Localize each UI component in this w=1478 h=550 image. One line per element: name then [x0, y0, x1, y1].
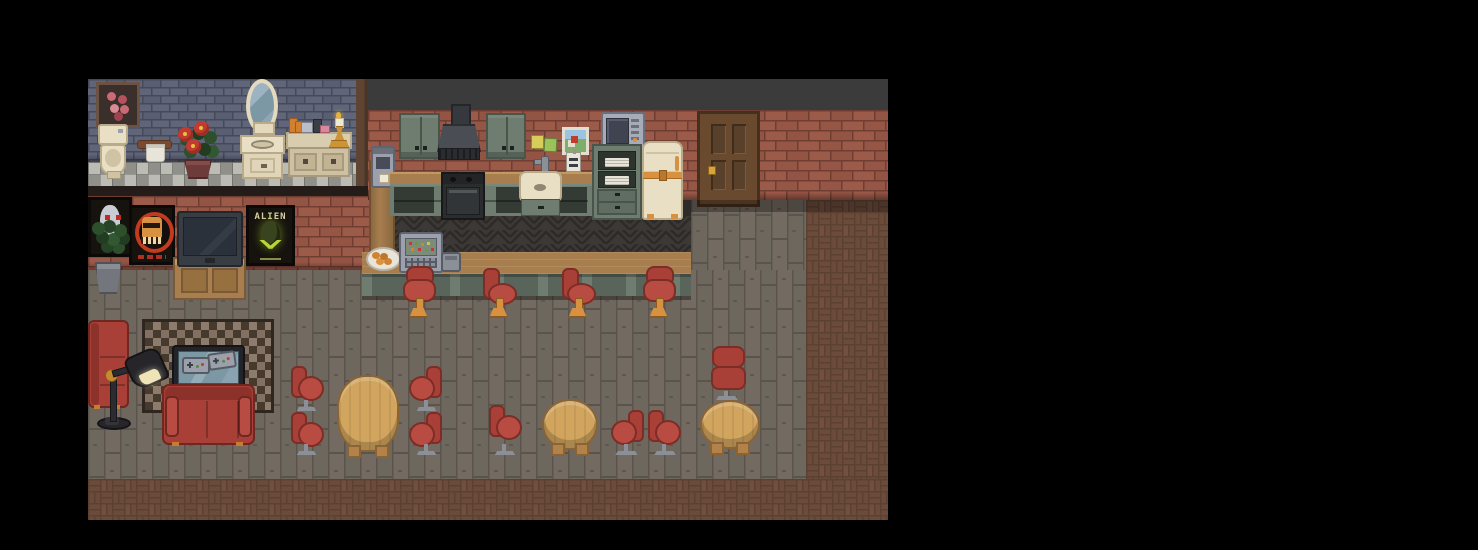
bar-stool[interactable] — [643, 266, 674, 317]
dining-chair[interactable] — [489, 405, 521, 455]
stool-base — [568, 308, 587, 318]
robot-grill — [141, 237, 163, 244]
candle-stem — [334, 126, 345, 142]
tv-stand-doors — [181, 268, 238, 293]
wall-edge-strip — [88, 186, 369, 196]
door-panels — [711, 124, 746, 190]
dining-chair[interactable] — [411, 366, 442, 411]
bar-stool[interactable] — [403, 266, 434, 317]
poster-caption-marks — [138, 255, 167, 259]
chair-back — [712, 346, 745, 368]
chair-base — [417, 451, 437, 455]
chair-seat — [711, 366, 746, 390]
hutch-shelf — [598, 171, 636, 188]
chair-stem — [424, 400, 428, 407]
hutch-shelf — [598, 151, 636, 170]
kitchen-sink[interactable] — [519, 156, 562, 216]
sink-cabinet — [521, 199, 560, 216]
vanity-cabinet — [242, 152, 283, 179]
flower-plant[interactable] — [176, 119, 220, 179]
towel-cloth — [146, 144, 165, 162]
sticky-note-green[interactable] — [544, 138, 558, 153]
robot-poster[interactable] — [129, 205, 175, 265]
towel-holder[interactable] — [137, 138, 172, 162]
stool-base — [649, 308, 668, 318]
toilet-base — [107, 171, 122, 179]
poster-tagline-mark — [260, 258, 282, 260]
game-controller[interactable] — [182, 357, 210, 374]
card-reader[interactable] — [441, 252, 461, 272]
brick-floor-right — [806, 200, 888, 479]
table-foot — [375, 445, 389, 458]
game-viewport[interactable]: ALIEN — [88, 79, 888, 520]
lamp-pole — [110, 376, 117, 422]
rose-picture[interactable] — [96, 82, 140, 128]
wall-divider — [356, 79, 368, 190]
candle-base — [329, 140, 349, 148]
tv-screen — [183, 217, 237, 256]
chair-seat — [409, 422, 435, 447]
robot-face — [142, 217, 162, 238]
dining-table-round[interactable] — [700, 400, 760, 455]
jar — [301, 122, 313, 133]
chair-seat — [611, 420, 637, 445]
counter-doors — [288, 147, 350, 177]
vanity-mirror[interactable] — [242, 79, 282, 135]
dining-table-round[interactable] — [542, 399, 598, 456]
chair-seat — [298, 376, 324, 401]
plant-pot — [95, 262, 122, 294]
mirror-base — [253, 122, 275, 135]
stove[interactable] — [441, 172, 485, 220]
couch-armrest — [238, 396, 252, 437]
rose-art — [107, 92, 116, 101]
chair-base — [297, 451, 317, 455]
dish-hutch[interactable] — [592, 144, 642, 220]
chair-base — [297, 407, 317, 411]
chair-seat — [409, 376, 435, 401]
chair-base — [495, 451, 515, 455]
table-foot — [736, 442, 750, 455]
stool-base — [489, 308, 508, 318]
candlestick[interactable] — [328, 112, 348, 148]
plank-floor-by-door — [691, 200, 806, 270]
dining-chair[interactable] — [710, 346, 744, 400]
alien-poster[interactable]: ALIEN — [246, 205, 295, 266]
coffee-cup — [379, 174, 389, 183]
chair-seat — [655, 420, 681, 445]
dining-table-oval[interactable] — [337, 375, 399, 458]
microwave-buttons — [631, 119, 639, 143]
plate-stack — [605, 176, 628, 185]
flower — [186, 139, 201, 154]
fridge[interactable] — [642, 141, 683, 220]
couch-bottom[interactable] — [162, 384, 255, 445]
lamp-shade — [122, 345, 170, 392]
entry-door[interactable] — [697, 111, 760, 207]
sink-vanity[interactable] — [240, 135, 285, 179]
toilet-tank — [98, 124, 128, 145]
floor-lamp[interactable] — [95, 350, 165, 430]
dining-chair[interactable] — [291, 366, 322, 411]
microwave-window — [606, 118, 629, 144]
plant-leaves — [92, 222, 105, 235]
fridge-feet — [647, 214, 678, 219]
toilet[interactable] — [97, 124, 129, 179]
couch-cushions — [177, 401, 240, 438]
brick-floor-bottom — [88, 479, 888, 520]
stool-base — [409, 308, 428, 318]
register-screen — [405, 238, 437, 256]
dining-chair[interactable] — [609, 410, 644, 455]
hutch-drawers — [597, 189, 637, 215]
chair-stem — [662, 444, 666, 451]
table-foot — [710, 442, 724, 455]
range-hood — [437, 104, 481, 162]
bar-stool[interactable] — [562, 266, 593, 317]
chair-base — [654, 451, 676, 455]
chair-seat — [496, 415, 522, 440]
door-knob — [708, 166, 716, 175]
tv-neck — [205, 258, 215, 263]
cooktop — [443, 174, 483, 184]
hood-vent — [438, 148, 480, 160]
plate-stack — [605, 158, 628, 167]
potted-plant[interactable] — [88, 220, 130, 294]
pastries — [372, 252, 380, 259]
dining-chair[interactable] — [291, 412, 322, 455]
chair-base — [615, 451, 637, 455]
chair-seat — [298, 422, 324, 447]
chair-stem — [502, 444, 506, 451]
hanging-sign[interactable] — [566, 152, 581, 172]
machine-window — [376, 157, 390, 169]
table-foot — [575, 443, 589, 456]
chair-stem — [304, 400, 308, 407]
table-foot — [551, 443, 565, 456]
upper-cabinet-left[interactable] — [399, 113, 440, 159]
chair-stem — [424, 444, 428, 451]
pastry-plate[interactable] — [366, 247, 401, 271]
toiletries — [289, 116, 329, 133]
chair-stem — [624, 444, 628, 451]
fridge-belt — [643, 171, 682, 179]
plant-pot — [184, 159, 212, 179]
flower — [194, 121, 209, 136]
bar-stool[interactable] — [483, 266, 514, 317]
chair-stem — [304, 444, 308, 451]
dining-chair[interactable] — [648, 410, 682, 455]
table-foot — [347, 445, 361, 458]
chair-base — [417, 407, 437, 411]
table-top — [337, 375, 399, 452]
oven-door — [446, 187, 480, 215]
screen-background: { "scene": { "title": "Pixel-art cafe ap… — [0, 0, 1478, 550]
dining-chair[interactable] — [411, 412, 442, 455]
television[interactable] — [177, 211, 243, 267]
sticky-note-yellow[interactable] — [531, 135, 544, 149]
upper-cabinet-right[interactable] — [486, 113, 526, 159]
fridge-handle — [675, 156, 679, 171]
